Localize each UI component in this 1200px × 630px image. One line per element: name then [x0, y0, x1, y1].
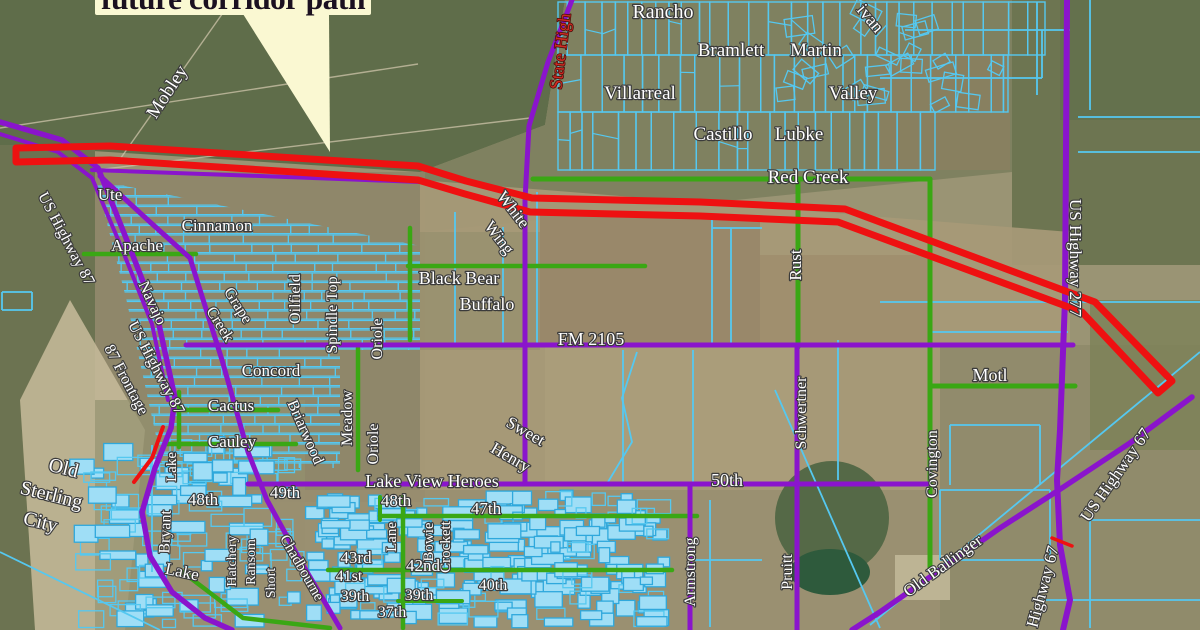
road-label: Short	[264, 568, 279, 598]
map-viewport[interactable]: MobleyRanchoBramlettMartinVillarrealVall…	[0, 0, 1200, 630]
parcel	[171, 521, 205, 532]
parcel	[637, 617, 667, 627]
parcel	[183, 453, 207, 462]
parcel	[213, 460, 234, 472]
road-label: Red Creek	[768, 167, 849, 188]
terrain-patch	[540, 215, 760, 345]
parcel	[321, 521, 350, 529]
road-label: 47th	[471, 499, 502, 518]
parcel	[209, 577, 224, 592]
road-label: Oilfield	[287, 274, 304, 324]
road-label: Castillo	[693, 124, 752, 145]
road-label: Cinnamon	[182, 216, 253, 235]
road-label: 37th	[378, 604, 406, 621]
road-label: Crockett	[438, 520, 454, 572]
parcel	[530, 517, 546, 530]
road-label: Motl	[972, 365, 1007, 385]
road-label: Oriole	[365, 424, 382, 465]
road-label: Pruitt	[779, 554, 796, 590]
parcel	[318, 496, 351, 507]
road-label: Lake	[164, 452, 180, 482]
parcel	[535, 592, 562, 607]
road-label: US Highway 277	[1066, 199, 1085, 318]
parcel	[522, 571, 537, 581]
road-label: Ransom	[244, 539, 259, 585]
parcel	[146, 605, 173, 616]
parcel	[640, 577, 652, 584]
parcel	[539, 499, 558, 510]
road-label: Spindle Top	[324, 276, 341, 353]
parcel	[544, 618, 572, 626]
road-label: Armstrong	[682, 537, 699, 606]
road-label: Bowie	[421, 522, 437, 562]
pond	[790, 549, 870, 595]
parcel	[89, 487, 117, 503]
road-label: Valley	[829, 83, 878, 104]
road-label: 43rd	[340, 548, 372, 567]
parcel	[617, 500, 636, 513]
road-label: Martin	[790, 40, 842, 61]
road-label: 41st	[336, 568, 363, 585]
road-label: Schwertner	[793, 376, 810, 450]
parcel	[565, 497, 591, 513]
road-label: Meadow	[339, 390, 356, 446]
road-label: Black Bear	[419, 268, 499, 288]
parcel	[397, 519, 422, 527]
callout-label: future corridor path	[101, 0, 365, 16]
parcel	[95, 525, 129, 537]
road-label: Bryant	[156, 509, 175, 554]
road-label: 49th	[270, 483, 301, 502]
road-label: Covington	[924, 430, 941, 498]
road-label: Lane	[384, 522, 400, 552]
road-label: FM 2105	[558, 329, 625, 349]
parcel	[464, 546, 488, 554]
road-label: Rancho	[632, 1, 693, 23]
parcel	[644, 526, 653, 536]
parcel	[307, 552, 324, 560]
parcel	[582, 577, 609, 591]
road-label: Ute	[98, 185, 123, 204]
parcel	[439, 608, 467, 623]
parcel	[437, 573, 455, 587]
road-label: 39th	[405, 587, 433, 604]
terrain-patch	[420, 232, 540, 350]
parcel	[227, 588, 258, 605]
road-label: Lubke	[775, 124, 824, 145]
parcel	[233, 478, 246, 496]
road-label: Oriole	[369, 319, 386, 360]
aerial-map[interactable]: MobleyRanchoBramlettMartinVillarrealVall…	[0, 0, 1200, 630]
road-label: Concord	[242, 361, 301, 380]
parcel	[288, 592, 301, 603]
road-label: Hatchery	[225, 535, 240, 586]
parcel	[576, 527, 599, 536]
road-label: Lake View Heroes	[365, 471, 499, 491]
parcel	[74, 525, 98, 542]
parcel	[322, 539, 334, 548]
parcel	[193, 463, 212, 481]
road-label: Rust	[786, 249, 805, 280]
road-label: Villarreal	[604, 83, 676, 104]
road-label: Bramlett	[698, 40, 765, 61]
road-label: Buffalo	[460, 294, 515, 314]
parcel	[599, 548, 610, 563]
road-label: 50th	[711, 470, 743, 490]
road-label: 48th	[381, 491, 412, 510]
road-label: Apache	[111, 236, 163, 255]
parcel	[512, 615, 528, 628]
parcel	[513, 491, 532, 505]
parcel	[219, 496, 252, 507]
road-label: 48th	[188, 490, 219, 509]
parcel	[349, 520, 369, 530]
road-label: Cauley	[208, 432, 257, 451]
parcel	[213, 473, 227, 482]
parcel	[488, 524, 521, 539]
road-label: 39th	[341, 588, 369, 605]
road-label: Cactus	[208, 396, 254, 415]
parcel	[474, 616, 497, 627]
terrain-patch	[1060, 0, 1200, 120]
parcel	[201, 561, 212, 571]
parcel	[581, 611, 602, 620]
parcel	[640, 596, 667, 610]
parcel	[443, 507, 473, 521]
parcel	[307, 605, 322, 621]
parcel	[455, 530, 480, 539]
parcel	[100, 551, 136, 559]
parcel	[117, 611, 144, 627]
terrain-patch	[545, 345, 795, 485]
parcel	[551, 542, 560, 552]
parcel-split	[720, 86, 740, 87]
road-label: 40th	[479, 577, 507, 594]
